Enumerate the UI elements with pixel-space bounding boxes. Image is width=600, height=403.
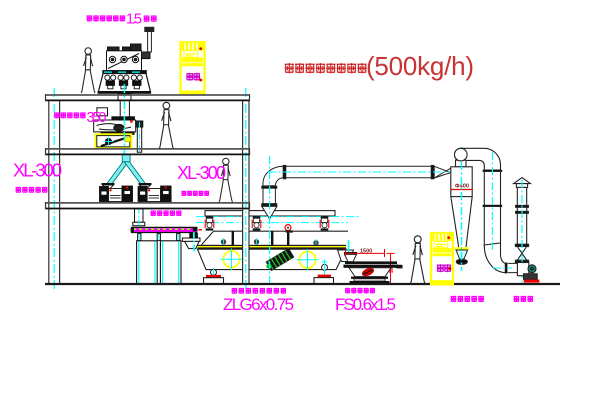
svg-text:350: 350 [87,110,107,126]
svg-text:1500: 1500 [360,248,372,254]
svg-text:ZLG6x0.75: ZLG6x0.75 [223,295,294,314]
svg-text:(500kg/h): (500kg/h) [366,51,474,81]
svg-text:XL-300: XL-300 [13,160,62,181]
svg-text:FS0.6x1.5: FS0.6x1.5 [335,295,396,314]
svg-text:1.5: 1.5 [126,12,142,28]
svg-text:XL-300: XL-300 [177,163,226,183]
